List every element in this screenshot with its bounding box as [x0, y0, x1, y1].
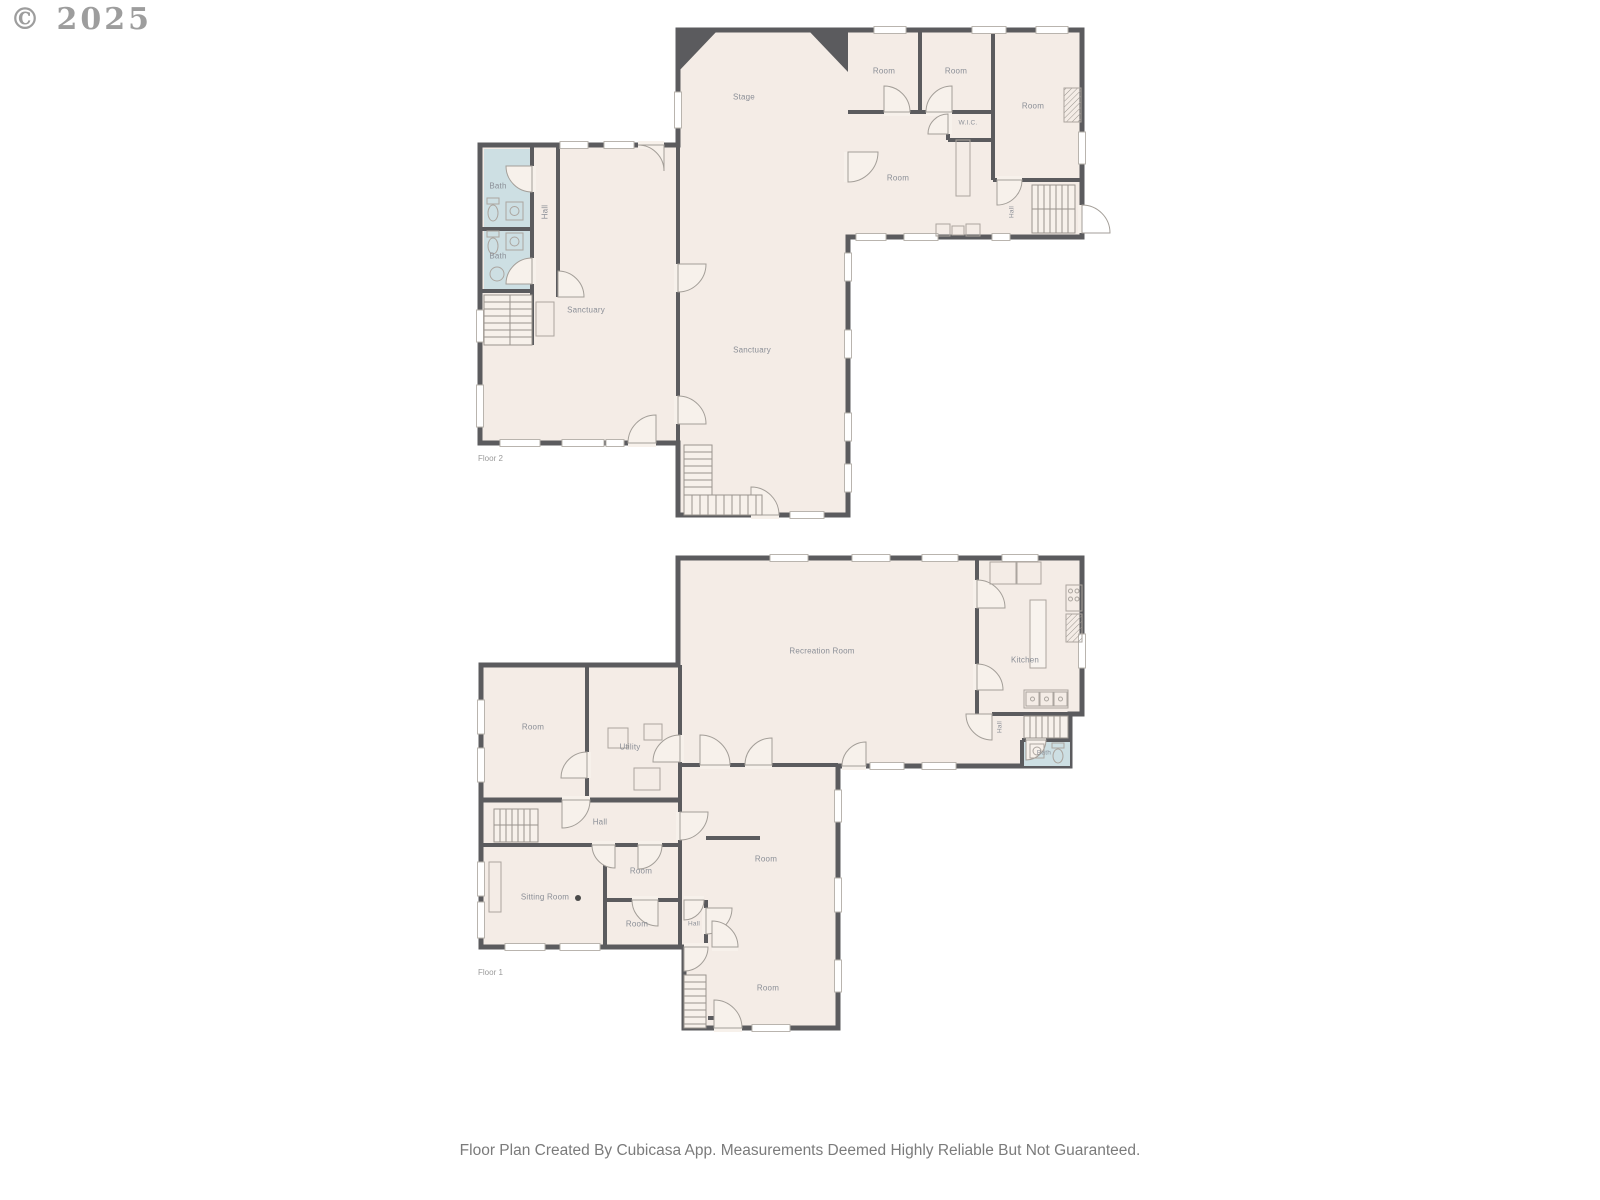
- room-label-room-right: Room: [1022, 102, 1044, 111]
- room-label-room-b: Room: [626, 920, 648, 929]
- room-label-bath-lower: Bath: [489, 252, 506, 261]
- floor1-plan: [478, 555, 1086, 1033]
- room-label-room-top-a: Room: [873, 67, 895, 76]
- room-label-hall-left: Hall: [541, 205, 550, 220]
- room-label-recreation: Recreation Room: [789, 647, 854, 656]
- footer-disclaimer: Floor Plan Created By Cubicasa App. Meas…: [0, 1142, 1600, 1160]
- room-label-bath-upper: Bath: [489, 182, 506, 191]
- room-label-room-center: Room: [887, 174, 909, 183]
- room-label-stage: Stage: [733, 93, 755, 102]
- room-label-hall-small: Hall: [688, 921, 700, 928]
- room-label-sanctuary-main: Sanctuary: [733, 346, 771, 355]
- floorplan-graphic: [0, 0, 1600, 1200]
- room-label-hall-main: Hall: [593, 818, 608, 827]
- room-label-room-left: Room: [522, 723, 544, 732]
- room-label-bath-f1: Bath: [1037, 750, 1051, 757]
- room-label-hall-kitchen: Hall: [997, 721, 1004, 733]
- floor2-plan: [477, 27, 1111, 520]
- room-label-room-top-b: Room: [945, 67, 967, 76]
- room-label-sanctuary-left: Sanctuary: [567, 306, 605, 315]
- room-label-wic: W.I.C.: [959, 120, 978, 127]
- room-label-sitting: Sitting Room: [521, 893, 569, 902]
- room-label-utility: Utility: [620, 743, 641, 752]
- floor1-tag: Floor 1: [478, 968, 503, 977]
- floorplan-page: © 2025: [0, 0, 1600, 1200]
- room-label-room-a: Room: [630, 867, 652, 876]
- room-label-kitchen: Kitchen: [1011, 656, 1039, 665]
- room-label-room-bottom: Room: [757, 984, 779, 993]
- room-label-room-center-f1: Room: [755, 855, 777, 864]
- room-label-hall-right: Hall: [1009, 206, 1016, 218]
- floor2-tag: Floor 2: [478, 454, 503, 463]
